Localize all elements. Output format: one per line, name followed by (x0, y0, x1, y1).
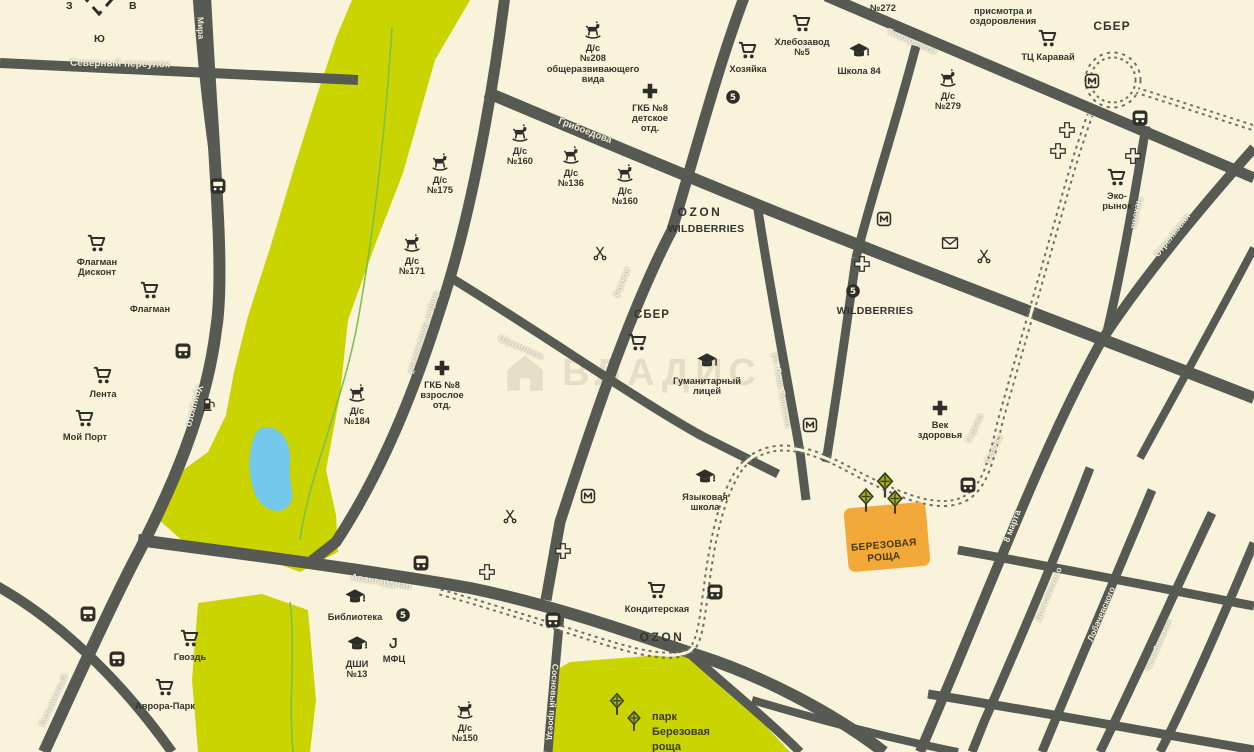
cross-icon (931, 399, 950, 418)
horse-icon (614, 162, 636, 184)
cart-icon (179, 627, 202, 650)
brand-label: OZON (640, 630, 685, 644)
bus-icon (174, 342, 193, 361)
poi-label: Д/с №160 (507, 146, 533, 167)
poi-label: Эко- рынок (1102, 191, 1132, 212)
grad-icon (696, 351, 719, 374)
poi-label: Век здоровья (918, 420, 962, 441)
cart-icon (74, 407, 97, 430)
fuel-icon (201, 396, 218, 413)
tree-icon (881, 488, 909, 516)
cart-icon (627, 331, 650, 354)
svg-text:5: 5 (400, 611, 406, 621)
bus-icon (544, 611, 563, 630)
poi-label: Хлебозавод №5 (774, 37, 829, 58)
poi-label: Д/с №171 (399, 256, 425, 277)
crossO-icon (478, 563, 497, 582)
envelope-icon (941, 234, 960, 253)
horse-icon (454, 699, 476, 721)
park-label-line3: роща (652, 742, 681, 752)
svg-text:5: 5 (730, 93, 736, 103)
brand-label: OZON (678, 205, 723, 219)
bus-icon (79, 605, 98, 624)
poi-label: Д/с №175 (427, 175, 453, 196)
tree-icon (622, 709, 646, 733)
poi-label: Кондитерская (625, 604, 689, 614)
brand-label: СБЕР (1093, 19, 1130, 33)
brand-label: присмотра и оздоровления (970, 6, 1036, 26)
cart-icon (154, 676, 177, 699)
cart-icon (92, 364, 115, 387)
horse-icon (509, 122, 531, 144)
cart-icon (737, 39, 760, 62)
crossO-icon (1049, 142, 1068, 161)
poi-label: Флагман (130, 304, 170, 314)
crossO-icon (1124, 147, 1143, 166)
poi-label: Гуманитарный лицей (673, 376, 741, 397)
grad-icon (344, 587, 367, 610)
m-icon (580, 488, 597, 505)
poi-label: Д/с №184 (344, 406, 370, 427)
cart-icon (1037, 27, 1060, 50)
horse-icon (872, 0, 894, 1)
bus-icon (108, 650, 127, 669)
poi-label: Д/с №136 (558, 168, 584, 189)
cross-icon (641, 82, 660, 101)
scissors-icon (592, 245, 609, 262)
bus-icon (1131, 109, 1150, 128)
poi-label: Мой Порт (63, 432, 107, 442)
horse-icon (560, 144, 582, 166)
five-icon: 5 (725, 89, 742, 106)
poi-label: Языковая школа (682, 492, 728, 513)
grad-icon (694, 467, 717, 490)
horse-icon (401, 232, 423, 254)
poi-label: ДШИ №13 (346, 659, 369, 680)
crossO-icon (554, 542, 573, 561)
horse-icon (346, 382, 368, 404)
map-canvas[interactable]: БЕРЕЗОВАЯ РОЩА парк Березовая роща ВЛАДИ… (0, 0, 1254, 752)
bus-icon (412, 554, 431, 573)
poi-label: Школа 84 (837, 66, 880, 76)
compass-west: З (66, 1, 73, 12)
bus-icon (706, 583, 725, 602)
watermark-house-icon (500, 348, 550, 398)
scissors-icon (976, 248, 993, 265)
cart-icon (86, 232, 109, 255)
poi-label: Д/с №279 (935, 91, 961, 112)
mfc-icon (387, 637, 402, 652)
cart-icon (139, 279, 162, 302)
poi-label: Д/с №160 (612, 186, 638, 207)
horse-icon (429, 151, 451, 173)
brand-label: WILDBERRIES (668, 223, 745, 235)
poi-label: Аврора-Парк (135, 701, 195, 711)
poi-label: Лента (89, 389, 116, 399)
poi-label: Библиотека (328, 612, 383, 622)
cart-icon (1106, 166, 1129, 189)
park-label-line1: парк (652, 712, 677, 723)
crossO-icon (1058, 121, 1077, 140)
poi-label: МФЦ (383, 654, 405, 664)
compass-south: Ю (94, 34, 105, 45)
poi-label: №272 (870, 3, 896, 13)
brand-label: СБЕР (634, 309, 670, 321)
poi-label: ГКБ №8 взрослое отд. (420, 380, 463, 411)
poi-label: Хозяйка (729, 64, 766, 74)
m-icon (1084, 73, 1101, 90)
m-icon (802, 417, 819, 434)
compass-east: В (129, 1, 137, 12)
crossO-icon (853, 255, 872, 274)
cart-icon (646, 579, 669, 602)
poi-label: Д/с №208 общеразвивающего вида (547, 43, 640, 85)
m-icon (876, 211, 893, 228)
cross-icon (433, 359, 452, 378)
poi-label: ТЦ Каравай (1021, 52, 1074, 62)
bus-icon (959, 476, 978, 495)
bus-icon (209, 177, 228, 196)
horse-icon (937, 67, 959, 89)
park-label-line2: Березовая (652, 727, 710, 738)
grad-icon (346, 634, 369, 657)
scissors-icon (502, 508, 519, 525)
brand-label: WILDBERRIES (837, 305, 914, 317)
tree-icon (852, 486, 880, 514)
five-icon: 5 (395, 607, 412, 624)
five-icon: 5 (845, 283, 862, 300)
poi-label: ГКБ №8 детское отд. (632, 103, 668, 134)
poi-label: Гвоздь (174, 652, 206, 662)
cart-icon (791, 12, 814, 35)
svg-text:5: 5 (850, 287, 856, 297)
poi-label: Д/с №150 (452, 723, 478, 744)
poi-label: Флагман Дисконт (77, 257, 117, 278)
horse-icon (582, 19, 604, 41)
grad-icon (848, 41, 871, 64)
